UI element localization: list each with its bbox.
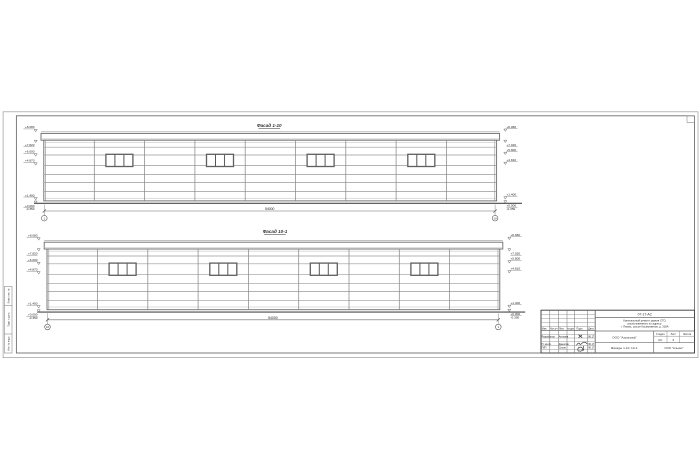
svg-text:Фасад 1-10: Фасад 1-10	[257, 123, 282, 128]
svg-text:Антонов: Антонов	[559, 335, 569, 338]
svg-text:г. Пермь, шоссе Космонавтов, д: г. Пермь, шоссе Космонавтов, д. 318А	[621, 325, 669, 329]
svg-text:Кол.уч: Кол.уч	[550, 328, 558, 331]
svg-text:07-17-АС: 07-17-АС	[638, 313, 653, 317]
svg-text:Фасады 1-10, 10-1.: Фасады 1-10, 10-1.	[611, 346, 638, 350]
svg-text:ГИП: ГИП	[542, 347, 547, 350]
svg-text:+8.080: +8.080	[25, 125, 35, 129]
svg-text:06.17: 06.17	[588, 347, 595, 350]
svg-text:№док.: №док.	[567, 328, 574, 331]
svg-text:+7.020: +7.020	[511, 252, 521, 256]
svg-text:+4.810: +4.810	[511, 267, 521, 271]
svg-text:Разработал: Разработал	[542, 335, 556, 338]
svg-text:54000: 54000	[268, 316, 278, 320]
svg-text:+1.400: +1.400	[507, 193, 517, 197]
svg-text:Сизов: Сизов	[559, 347, 567, 350]
svg-text:Подп.: Подп.	[577, 328, 584, 331]
svg-text:Дата: Дата	[588, 328, 594, 331]
svg-text:Инв. № подл.: Инв. № подл.	[8, 336, 11, 351]
svg-text:54000: 54000	[265, 207, 275, 211]
svg-text:Данилов: Данилов	[559, 343, 570, 346]
svg-text:+1.400: +1.400	[511, 301, 521, 305]
svg-text:Лист: Лист	[559, 328, 565, 331]
svg-text:Взам. инв. №: Взам. инв. №	[8, 288, 11, 303]
svg-text:+7.820: +7.820	[28, 252, 38, 256]
svg-text:+4.810: +4.810	[507, 158, 517, 162]
svg-text:+5.800: +5.800	[507, 148, 517, 152]
svg-text:Изм.: Изм.	[542, 328, 548, 331]
svg-text:+7.020: +7.020	[507, 143, 517, 147]
svg-text:+5.800: +5.800	[511, 257, 521, 261]
svg-text:+7.820: +7.820	[25, 143, 35, 147]
svg-text:+8.080: +8.080	[28, 234, 38, 238]
svg-text:ООО "Аэрограф": ООО "Аэрограф"	[612, 335, 637, 339]
svg-text:Листов: Листов	[683, 333, 692, 336]
svg-text:3: 3	[672, 338, 674, 342]
svg-text:Подп. и дата: Подп. и дата	[8, 312, 11, 327]
svg-text:-0.350: -0.350	[507, 207, 516, 211]
svg-text:+4.870: +4.870	[25, 159, 35, 163]
svg-text:+6.000: +6.000	[25, 150, 35, 154]
svg-text:-0.350: -0.350	[26, 207, 35, 211]
svg-text:06.17: 06.17	[588, 343, 595, 346]
svg-text:Фасад 10-1: Фасад 10-1	[263, 229, 288, 234]
svg-text:+8.080: +8.080	[507, 125, 517, 129]
svg-text:Стадия: Стадия	[656, 333, 665, 336]
svg-text:+6.000: +6.000	[28, 258, 38, 262]
svg-text:+1.400: +1.400	[28, 302, 38, 306]
svg-text:ООО "Альянс": ООО "Альянс"	[664, 346, 683, 350]
svg-text:-0.350: -0.350	[29, 316, 38, 320]
svg-text:10: 10	[493, 216, 497, 220]
svg-text:+1.400: +1.400	[25, 193, 35, 197]
svg-text:Лист: Лист	[671, 333, 677, 336]
svg-text:+4.870: +4.870	[28, 268, 38, 272]
svg-text:10: 10	[46, 325, 50, 329]
svg-text:Н. контр.: Н. контр.	[542, 343, 552, 346]
svg-text:-0.350: -0.350	[511, 315, 520, 319]
svg-text:+8.080: +8.080	[511, 233, 521, 237]
svg-text:06.17: 06.17	[588, 335, 595, 338]
